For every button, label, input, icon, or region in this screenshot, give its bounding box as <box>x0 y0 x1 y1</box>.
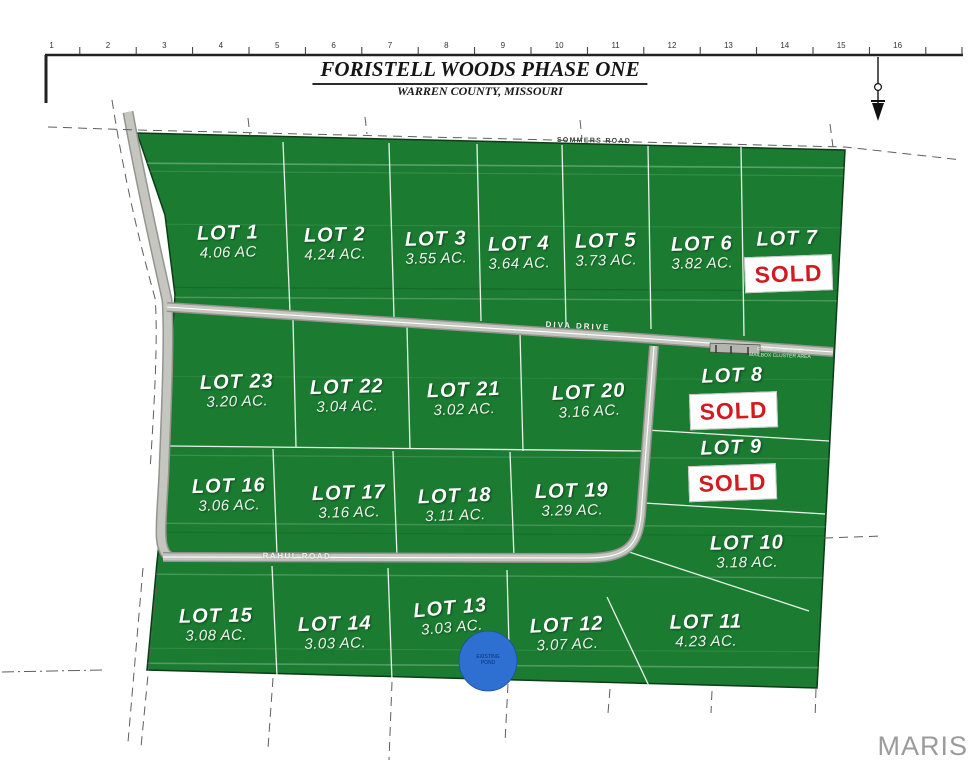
lot-6-acreage: 3.82 AC. <box>671 255 733 273</box>
lot-15-name: LOT 15 <box>179 605 253 628</box>
lot-1: LOT 1 4.06 AC <box>197 222 260 261</box>
lot-10-name: LOT 10 <box>710 532 784 555</box>
lot-4-name: LOT 4 <box>488 233 550 256</box>
lot-5-name: LOT 5 <box>575 230 637 253</box>
ruler-number: 5 <box>275 41 279 50</box>
road-label-rahul: RAHUL ROAD <box>263 551 332 561</box>
lot-12-acreage: 3.07 AC. <box>536 635 598 654</box>
ruler-number: 14 <box>780 41 789 50</box>
pond-note: EXISTING POND <box>476 654 499 666</box>
ruler-number: 3 <box>162 41 166 50</box>
north-arrow-icon <box>871 57 885 121</box>
lot-9-name: LOT 9 <box>700 437 762 461</box>
maris-watermark: MARIS <box>877 731 968 762</box>
page-title: FORISTELL WOODS PHASE ONE <box>312 57 647 85</box>
lot-14-acreage: 3.03 AC. <box>304 635 366 653</box>
dash-dot-boundary <box>2 670 102 672</box>
ruler-number: 13 <box>724 41 733 50</box>
lot-2-name: LOT 2 <box>304 224 366 247</box>
lot-14-name: LOT 14 <box>298 613 372 637</box>
lot-9: LOT 9 SOLD <box>687 436 777 502</box>
lot-21-acreage: 3.02 AC. <box>433 401 495 419</box>
ruler-number: 4 <box>219 41 223 50</box>
lot-23-name: LOT 23 <box>200 371 274 395</box>
lot-5-acreage: 3.73 AC. <box>575 252 637 270</box>
ruler-number: 10 <box>555 41 564 50</box>
lot-19-acreage: 3.29 AC. <box>541 502 603 520</box>
lot-19-name: LOT 19 <box>535 480 609 504</box>
lot-9-sold-badge: SOLD <box>688 463 777 502</box>
lot-3: LOT 3 3.55 AC. <box>405 228 468 267</box>
lot-8-sold-badge: SOLD <box>689 391 778 430</box>
ruler-number: 9 <box>501 41 505 50</box>
lot-10-acreage: 3.18 AC. <box>716 554 778 571</box>
road-label-sommers: SOMMERS ROAD <box>557 137 631 145</box>
lot-7-name: LOT 7 <box>756 228 818 252</box>
mailbox-cluster-note: COMMON GROUND MAILBOX CLUSTER AREA <box>749 346 811 360</box>
page-subtitle: WARREN COUNTY, MISSOURI <box>397 84 563 99</box>
lot-20: LOT 20 3.16 AC. <box>551 380 627 422</box>
lot-20-acreage: 3.16 AC. <box>558 402 621 421</box>
lot-2: LOT 2 4.24 AC. <box>304 224 367 263</box>
ruler-number: 12 <box>668 41 677 50</box>
lot-13: LOT 13 3.03 AC. <box>413 595 490 639</box>
lot-16-acreage: 3.06 AC. <box>198 497 260 515</box>
lot-22: LOT 22 3.04 AC. <box>310 376 385 416</box>
lot-10: LOT 10 3.18 AC. <box>710 532 784 571</box>
ruler-number: 7 <box>388 41 392 50</box>
ruler-number: 16 <box>893 41 902 50</box>
lot-14: LOT 14 3.03 AC. <box>298 613 373 653</box>
lot-11-acreage: 4.23 AC. <box>675 633 737 650</box>
lot-21: LOT 21 3.02 AC. <box>426 379 501 419</box>
lot-16: LOT 16 3.06 AC. <box>192 475 267 515</box>
plat-map-page: { "header": { "title": "FORISTELL WOODS … <box>0 0 974 768</box>
ruler-number: 11 <box>611 41 619 50</box>
lot-7-sold-badge: SOLD <box>744 254 833 293</box>
ruler-number: 1 <box>49 41 53 50</box>
pond-note-line2: POND <box>476 660 499 666</box>
ruler-number: 6 <box>331 41 335 50</box>
lot-2-acreage: 4.24 AC. <box>304 246 366 264</box>
lot-19: LOT 19 3.29 AC. <box>535 480 610 520</box>
lot-5: LOT 5 3.73 AC. <box>575 230 638 269</box>
lot-12: LOT 12 3.07 AC. <box>529 614 604 655</box>
lot-23-acreage: 3.20 AC. <box>206 393 268 411</box>
lot-23: LOT 23 3.20 AC. <box>200 371 275 411</box>
lot-11: LOT 11 4.23 AC. <box>670 611 743 650</box>
lot-18-acreage: 3.11 AC. <box>425 507 486 525</box>
lot-22-acreage: 3.04 AC. <box>316 398 378 416</box>
lot-15-acreage: 3.08 AC. <box>185 627 247 644</box>
lot-8: LOT 8 SOLD <box>688 364 778 430</box>
lot-1-acreage: 4.06 AC <box>199 244 257 262</box>
ruler-number: 15 <box>837 41 846 50</box>
lot-6-name: LOT 6 <box>671 233 733 256</box>
lot-17-acreage: 3.16 AC. <box>318 504 380 522</box>
lot-15: LOT 15 3.08 AC. <box>179 605 253 644</box>
lot-17: LOT 17 3.16 AC. <box>312 482 387 522</box>
lot-11-name: LOT 11 <box>670 611 743 634</box>
ruler-number: 2 <box>106 41 110 50</box>
lot-22-name: LOT 22 <box>310 376 384 400</box>
lot-3-acreage: 3.55 AC. <box>405 250 467 268</box>
lot-7: LOT 7 SOLD <box>743 227 833 293</box>
lot-4-acreage: 3.64 AC. <box>488 255 550 273</box>
lot-17-name: LOT 17 <box>312 482 386 506</box>
lot-1-name: LOT 1 <box>197 222 259 245</box>
lot-18: LOT 18 3.11 AC. <box>417 485 492 525</box>
ruler-number: 8 <box>444 41 448 50</box>
lot-16-name: LOT 16 <box>192 475 266 499</box>
lot-4: LOT 4 3.64 AC. <box>488 233 551 272</box>
lot-8-name: LOT 8 <box>701 365 763 389</box>
lot-6: LOT 6 3.82 AC. <box>671 233 734 272</box>
lot-3-name: LOT 3 <box>405 228 467 251</box>
